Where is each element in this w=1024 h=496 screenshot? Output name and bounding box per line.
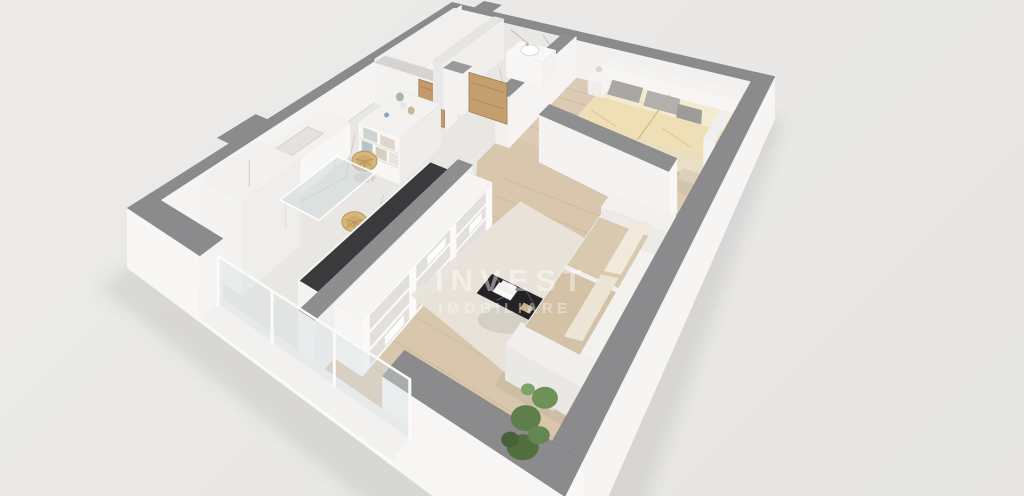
watermark-line2: IMOBILIARE (438, 300, 571, 317)
floorplan-3d-render: INVEST IMOBILIARE (0, 0, 1024, 496)
apartment-scene: INVEST IMOBILIARE (0, 0, 1024, 496)
render-geometry (100, 1, 784, 496)
watermark-line1: INVEST (435, 263, 589, 298)
